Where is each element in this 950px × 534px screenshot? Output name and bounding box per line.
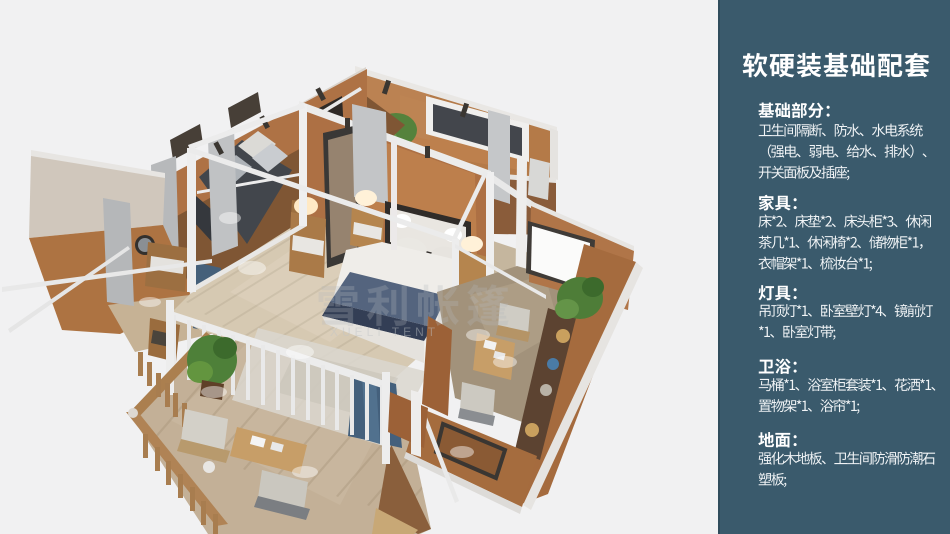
svg-text:XUELI TENT: XUELI TENT bbox=[330, 325, 439, 339]
